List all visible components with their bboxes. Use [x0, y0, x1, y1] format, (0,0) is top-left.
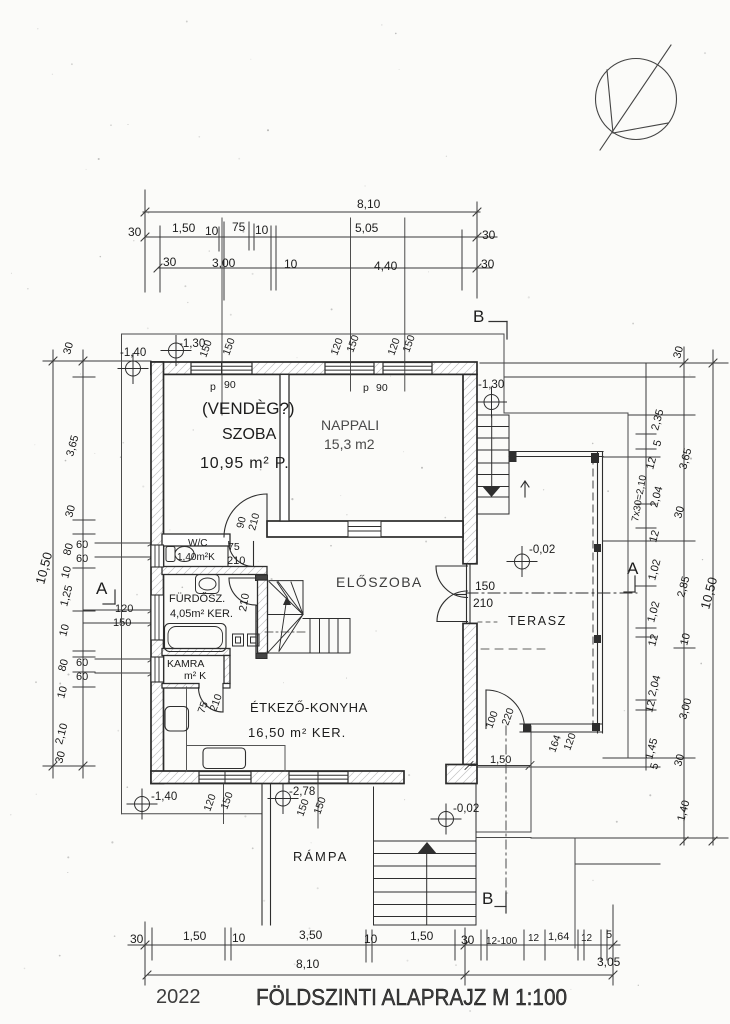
svg-text:(VENDÈG?): (VENDÈG?) [202, 399, 295, 418]
svg-text:A: A [96, 579, 108, 598]
svg-text:90: 90 [224, 379, 236, 391]
svg-text:12-100: 12-100 [486, 936, 518, 947]
svg-text:10: 10 [284, 257, 298, 271]
svg-text:2,04: 2,04 [648, 485, 665, 509]
svg-text:10,50: 10,50 [32, 550, 55, 585]
svg-text:1,64: 1,64 [548, 931, 569, 943]
svg-text:2,85: 2,85 [675, 575, 692, 599]
svg-text:150: 150 [401, 333, 418, 354]
svg-text:2,04: 2,04 [646, 674, 663, 698]
svg-text:120: 120 [329, 336, 346, 357]
svg-text:8,10: 8,10 [357, 197, 381, 211]
svg-text:10,50: 10,50 [697, 575, 720, 610]
svg-text:5: 5 [651, 439, 664, 448]
svg-text:3,05: 3,05 [597, 955, 621, 969]
svg-text:1,02: 1,02 [645, 600, 662, 624]
svg-text:1,25: 1,25 [58, 584, 75, 608]
svg-text:210: 210 [473, 596, 493, 610]
svg-text:1,40m²K: 1,40m²K [177, 552, 215, 563]
svg-text:-1,40: -1,40 [151, 791, 177, 803]
svg-text:p: p [363, 382, 369, 394]
svg-text:3,65: 3,65 [64, 434, 81, 458]
svg-text:75: 75 [232, 220, 246, 234]
svg-text:-1,40: -1,40 [120, 347, 146, 359]
svg-text:120: 120 [386, 336, 403, 357]
svg-text:60: 60 [76, 553, 88, 565]
svg-text:2022: 2022 [156, 986, 201, 1008]
svg-text:10: 10 [255, 223, 269, 237]
svg-text:150: 150 [475, 579, 495, 593]
svg-text:10: 10 [205, 224, 219, 238]
svg-text:5: 5 [606, 929, 612, 941]
svg-text:8,10: 8,10 [296, 957, 320, 971]
svg-text:16,50 m² KER.: 16,50 m² KER. [248, 725, 346, 740]
svg-text:150: 150 [312, 795, 329, 816]
svg-text:30: 30 [128, 225, 142, 239]
svg-text:1,40: 1,40 [675, 799, 692, 823]
svg-text:-0,02: -0,02 [529, 544, 555, 556]
svg-text:RÁMPA: RÁMPA [293, 849, 348, 864]
svg-text:30: 30 [63, 504, 78, 519]
svg-text:-2,78: -2,78 [289, 786, 315, 798]
svg-text:-0,02: -0,02 [453, 803, 479, 815]
svg-text:10: 10 [364, 932, 378, 946]
svg-text:1,50: 1,50 [172, 221, 196, 235]
svg-text:90: 90 [376, 382, 388, 394]
svg-text:15,3 m2: 15,3 m2 [324, 436, 375, 452]
svg-text:1,02: 1,02 [646, 558, 663, 582]
svg-text:10: 10 [678, 632, 693, 647]
svg-text:2,10: 2,10 [53, 722, 70, 746]
svg-text:60: 60 [76, 671, 88, 683]
svg-text:150: 150 [345, 333, 362, 354]
svg-text:FÜRDŐSZ.: FÜRDŐSZ. [169, 591, 225, 605]
svg-text:75: 75 [228, 541, 240, 553]
svg-text:60: 60 [76, 657, 88, 669]
svg-text:30: 30 [461, 933, 475, 947]
svg-text:150: 150 [221, 336, 238, 357]
svg-text:NAPPALI: NAPPALI [321, 417, 379, 433]
svg-text:210: 210 [227, 555, 245, 567]
svg-text:12: 12 [643, 699, 658, 714]
svg-text:10: 10 [59, 565, 74, 580]
svg-text:10: 10 [57, 623, 72, 638]
svg-text:12: 12 [646, 633, 661, 648]
svg-text:12: 12 [647, 529, 662, 544]
svg-text:12: 12 [581, 933, 593, 944]
svg-text:10,95 m² P.: 10,95 m² P. [200, 455, 289, 472]
svg-text:4,05m² KER.: 4,05m² KER. [170, 608, 233, 620]
svg-text:3,00: 3,00 [212, 256, 236, 270]
svg-text:30: 30 [53, 750, 68, 765]
svg-text:1,50: 1,50 [183, 929, 207, 943]
svg-text:30: 30 [482, 228, 496, 242]
svg-text:TERASZ: TERASZ [508, 614, 567, 628]
svg-text:5: 5 [648, 762, 661, 771]
svg-text:80: 80 [61, 542, 76, 557]
svg-text:A: A [627, 559, 639, 578]
svg-text:ÉTKEZŐ-KONYHA: ÉTKEZŐ-KONYHA [250, 700, 368, 715]
svg-text:B: B [473, 307, 484, 326]
svg-text:B: B [482, 889, 493, 908]
svg-text:FÖLDSZINTI ALAPRAJZ M 1:100: FÖLDSZINTI ALAPRAJZ M 1:100 [256, 984, 567, 1010]
svg-text:30: 30 [481, 257, 495, 271]
svg-text:60: 60 [76, 539, 88, 551]
svg-text:-1,30: -1,30 [478, 379, 504, 391]
svg-text:12: 12 [528, 933, 540, 944]
svg-text:164: 164 [547, 733, 564, 754]
svg-text:30: 30 [672, 753, 687, 768]
svg-text:30: 30 [163, 255, 177, 269]
svg-text:m² K: m² K [184, 670, 206, 682]
svg-text:30: 30 [672, 505, 687, 520]
svg-text:10: 10 [55, 685, 70, 700]
svg-text:SZOBA: SZOBA [222, 426, 277, 443]
svg-text:120: 120 [202, 792, 219, 813]
svg-text:120: 120 [115, 603, 133, 615]
svg-text:5,05: 5,05 [355, 221, 379, 235]
svg-text:2,35: 2,35 [649, 408, 666, 432]
svg-text:12: 12 [644, 456, 659, 471]
svg-text:150: 150 [113, 617, 131, 629]
svg-text:210: 210 [208, 692, 225, 713]
svg-text:10: 10 [232, 931, 246, 945]
svg-text:30: 30 [130, 932, 144, 946]
svg-text:1,50: 1,50 [410, 929, 434, 943]
svg-text:1,50: 1,50 [490, 754, 511, 766]
svg-text:210: 210 [237, 592, 252, 612]
svg-text:80: 80 [56, 658, 71, 673]
svg-text:p: p [210, 381, 216, 393]
svg-text:150: 150 [219, 790, 236, 811]
svg-text:220: 220 [500, 706, 517, 727]
svg-text:3,50: 3,50 [299, 928, 323, 942]
svg-text:4,40: 4,40 [374, 259, 398, 273]
svg-text:30: 30 [61, 341, 76, 356]
svg-text:210: 210 [246, 512, 262, 532]
svg-text:W/C: W/C [188, 538, 207, 549]
svg-text:150: 150 [295, 797, 312, 818]
svg-text:3,00: 3,00 [677, 697, 694, 721]
svg-text:120: 120 [562, 731, 579, 752]
svg-text:KAMRA: KAMRA [167, 658, 204, 670]
svg-text:3,65: 3,65 [677, 447, 694, 471]
svg-text:ELŐSZOBA: ELŐSZOBA [336, 574, 423, 590]
